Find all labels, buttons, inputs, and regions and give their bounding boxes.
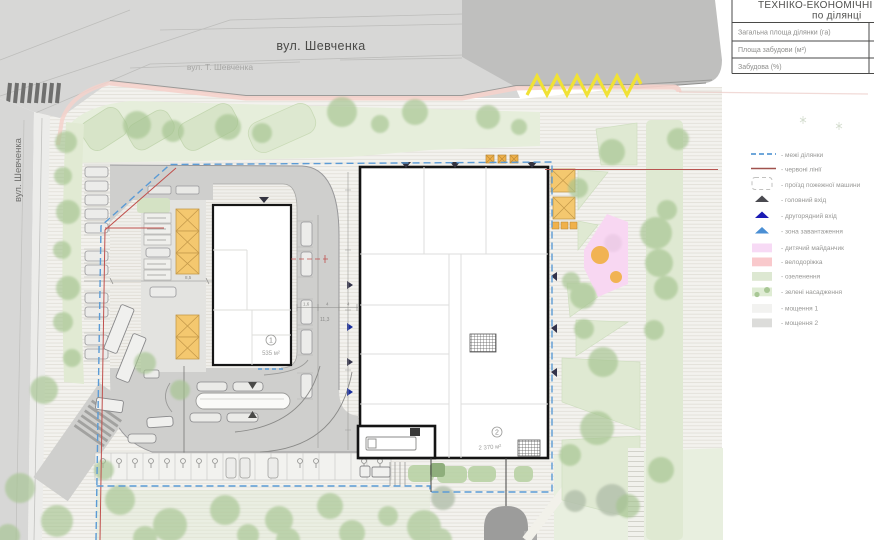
svg-text:1,6: 1,6	[303, 302, 310, 307]
svg-text:- мощення 2: - мощення 2	[781, 320, 818, 327]
svg-text:535 м²: 535 м²	[262, 351, 280, 357]
svg-text:1: 1	[269, 338, 273, 345]
svg-text:- зелені насадження: - зелені насадження	[781, 288, 843, 296]
svg-text:- велодоріжка: - велодоріжка	[781, 258, 823, 266]
svg-text:вул. Шевченка: вул. Шевченка	[13, 137, 24, 202]
svg-text:- проїзд пожежної машини: - проїзд пожежної машини	[781, 182, 861, 189]
svg-text:- дитячий майданчик: - дитячий майданчик	[781, 244, 844, 252]
svg-text:8,5: 8,5	[185, 275, 192, 280]
svg-text:вул. Шевченка: вул. Шевченка	[276, 39, 365, 53]
svg-text:по ділянці: по ділянці	[812, 11, 862, 22]
svg-text:- головний вхід: - головний вхід	[781, 196, 826, 204]
svg-text:Забудова (%): Забудова (%)	[738, 63, 782, 71]
svg-text:- другорядний вхід: - другорядний вхід	[781, 212, 837, 220]
svg-text:вул. Т. Шевченка: вул. Т. Шевченка	[187, 62, 253, 72]
svg-text:11,3: 11,3	[320, 317, 330, 323]
svg-text:Загальна площа ділянки (га): Загальна площа ділянки (га)	[738, 29, 831, 37]
svg-text:- межі ділянки: - межі ділянки	[781, 151, 824, 159]
svg-text:- озеленення: - озеленення	[781, 274, 821, 281]
svg-text:- червоні лінії: - червоні лінії	[781, 166, 822, 174]
svg-text:- мощення 1: - мощення 1	[781, 306, 818, 313]
svg-text:- зона завантаження: - зона завантаження	[781, 229, 843, 236]
svg-text:Площа забудови (м²): Площа забудови (м²)	[738, 46, 806, 54]
svg-text:2: 2	[495, 430, 499, 437]
svg-text:ТЕХНІКО-ЕКОНОМІЧНІ ПОКАЗНИКИ: ТЕХНІКО-ЕКОНОМІЧНІ ПОКАЗНИКИ	[758, 0, 874, 11]
